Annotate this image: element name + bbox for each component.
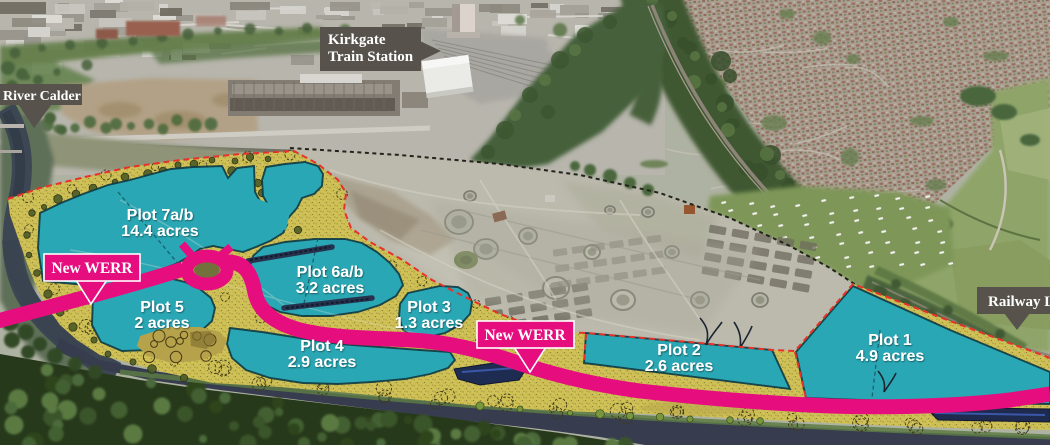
svg-text:New WERR: New WERR xyxy=(484,327,566,344)
svg-text:Plot 1: Plot 1 xyxy=(868,332,912,349)
svg-text:3.2 acres: 3.2 acres xyxy=(296,280,365,297)
svg-text:Kirkgate: Kirkgate xyxy=(328,32,386,48)
svg-text:Plot 6a/b: Plot 6a/b xyxy=(297,264,364,281)
svg-text:14.4 acres: 14.4 acres xyxy=(121,223,199,240)
svg-text:New WERR: New WERR xyxy=(51,260,133,277)
svg-text:1.3 acres: 1.3 acres xyxy=(395,315,464,332)
svg-text:Plot 4: Plot 4 xyxy=(300,338,344,355)
svg-text:Plot 7a/b: Plot 7a/b xyxy=(127,207,194,224)
svg-text:Plot 2: Plot 2 xyxy=(657,342,701,359)
svg-text:2.6 acres: 2.6 acres xyxy=(645,358,714,375)
svg-text:Train Station: Train Station xyxy=(328,49,414,65)
svg-text:River Calder: River Calder xyxy=(3,89,81,104)
svg-text:2.9 acres: 2.9 acres xyxy=(288,354,357,371)
svg-text:2 acres: 2 acres xyxy=(134,315,189,332)
svg-text:4.9 acres: 4.9 acres xyxy=(856,348,925,365)
svg-text:Railway Lin: Railway Lin xyxy=(988,294,1050,310)
svg-text:Plot 5: Plot 5 xyxy=(140,299,184,316)
svg-text:Plot 3: Plot 3 xyxy=(407,299,451,316)
